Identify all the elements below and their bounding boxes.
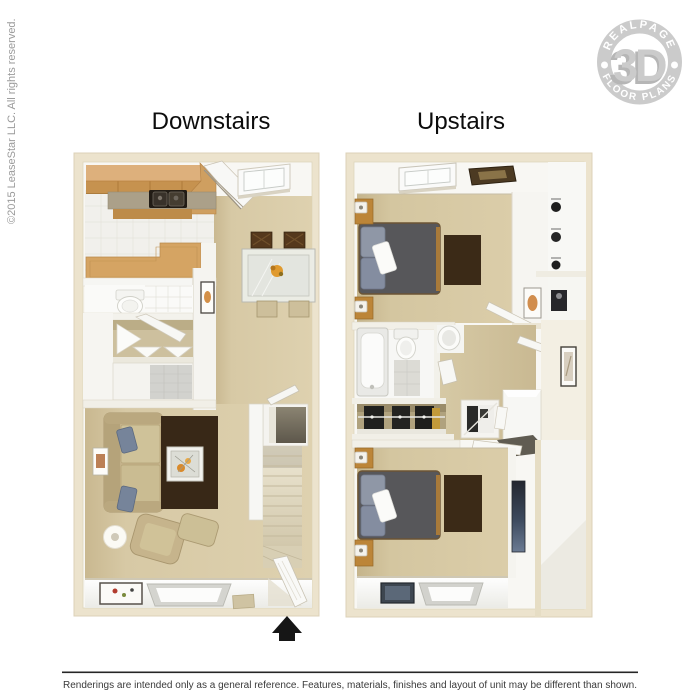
svg-text:Renderings are intended only a: Renderings are intended only as a genera… <box>63 680 637 691</box>
svg-text:Downstairs: Downstairs <box>152 108 271 135</box>
svg-text:3D: 3D <box>613 40 666 91</box>
svg-text:Upstairs: Upstairs <box>417 108 505 135</box>
svg-text:©2015 LeaseStar LLC. All right: ©2015 LeaseStar LLC. All rights reserved… <box>6 18 18 224</box>
